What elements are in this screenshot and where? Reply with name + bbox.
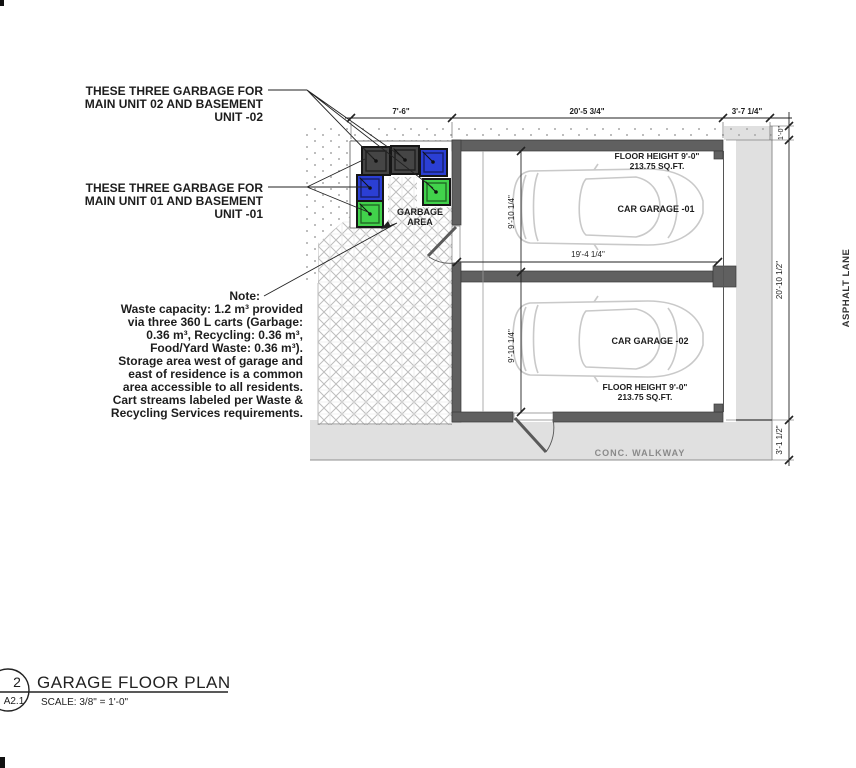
annotation-unit01: THESE THREE GARBAGE FOR MAIN UNIT 01 AND…	[85, 181, 264, 221]
dim-top-right: 3'-7 1/4"	[732, 107, 763, 116]
note-block: Note: Waste capacity: 1.2 m³ provided vi…	[111, 289, 303, 420]
note-line: Waste capacity: 1.2 m³ provided	[121, 302, 303, 316]
floor-plan-canvas: 7'-6" 20'-5 3/4" 3'-7 1/4" 1'-0" 20'-10 …	[0, 0, 856, 768]
sheet-number: A2.1	[4, 696, 25, 707]
annotation-line: MAIN UNIT 02 AND BASEMENT	[85, 97, 264, 111]
annotation-line: UNIT -02	[214, 110, 263, 124]
corner-artifact	[0, 0, 4, 6]
dim-right-walkway: 3'-1 1/2"	[775, 425, 784, 454]
note-heading: Note:	[229, 289, 260, 303]
drawing-title: GARAGE FLOOR PLAN	[37, 673, 231, 692]
conc-walkway-label: CONC. WALKWAY	[595, 448, 686, 458]
dim-top-left: 7'-6"	[392, 107, 409, 116]
garage-floor-plan-drawing: 7'-6" 20'-5 3/4" 3'-7 1/4" 1'-0" 20'-10 …	[0, 0, 856, 768]
south-wall-left	[452, 412, 513, 422]
annotation-line: THESE THREE GARBAGE FOR	[86, 181, 264, 195]
west-wall-upper	[452, 140, 461, 225]
conc-walkway-area	[310, 420, 772, 460]
west-wall-lower	[452, 263, 461, 422]
annotation-line: THESE THREE GARBAGE FOR	[86, 84, 264, 98]
note-line: east of residence is a common	[128, 367, 303, 381]
dim-top-middle: 20'-5 3/4"	[569, 107, 604, 116]
recycling-cart-1-icon	[420, 149, 447, 176]
floor-height-01-label: FLOOR HEIGHT 9'-0"	[615, 151, 700, 161]
asphalt-lane-label: ASPHALT LANE	[841, 249, 852, 328]
dim-right-garage: 20'-10 1/2"	[775, 261, 784, 299]
car-garage-02-label: CAR GARAGE -02	[611, 336, 688, 346]
garbage-area-label: AREA	[407, 217, 433, 227]
dim-bay1-depth: 9'-10 1/4"	[507, 195, 516, 229]
note-line: via three 360 L carts (Garbage:	[128, 315, 303, 329]
north-wall	[452, 140, 723, 151]
dim-garage-width: 19'-4 1/4"	[571, 250, 605, 259]
annotation-unit02: THESE THREE GARBAGE FOR MAIN UNIT 02 AND…	[85, 84, 264, 124]
detail-number: 2	[13, 674, 21, 690]
recycling-cart-2-icon	[357, 175, 383, 201]
drawing-scale: SCALE: 3/8" = 1'-0"	[41, 697, 129, 708]
title-block: 2 A2.1 GARAGE FLOOR PLAN SCALE: 3/8" = 1…	[0, 669, 231, 711]
divider-wall	[461, 271, 713, 282]
annotation-line: MAIN UNIT 01 AND BASEMENT	[85, 194, 264, 208]
area-02-label: 213.75 SQ.FT.	[618, 392, 673, 402]
area-01-label: 213.75 SQ.FT.	[630, 161, 685, 171]
note-line: Food/Yard Waste: 0.36 m³).	[150, 341, 303, 355]
note-line: Cart streams labeled per Waste &	[113, 393, 304, 407]
note-line: 0.36 m³, Recycling: 0.36 m³,	[146, 328, 303, 342]
annotation-line: UNIT -01	[214, 207, 263, 221]
garbage-area-label: GARBAGE	[397, 207, 443, 217]
garbage-cart-2-icon	[391, 146, 419, 174]
dim-bay2-depth: 9'-10 1/4"	[507, 329, 516, 363]
south-wall-right	[553, 412, 723, 422]
divider-pier	[713, 266, 736, 287]
note-line: area accessible to all residents.	[123, 380, 303, 394]
organics-cart-2-icon	[357, 201, 383, 227]
note-line: Recycling Services requirements.	[111, 406, 303, 420]
corner-artifact	[0, 757, 5, 768]
floor-height-02-label: FLOOR HEIGHT 9'-0"	[603, 382, 688, 392]
note-line: Storage area west of garage and	[118, 354, 303, 368]
dim-right-offset: 1'-0"	[778, 126, 785, 140]
car-garage-01-label: CAR GARAGE -01	[617, 204, 694, 214]
